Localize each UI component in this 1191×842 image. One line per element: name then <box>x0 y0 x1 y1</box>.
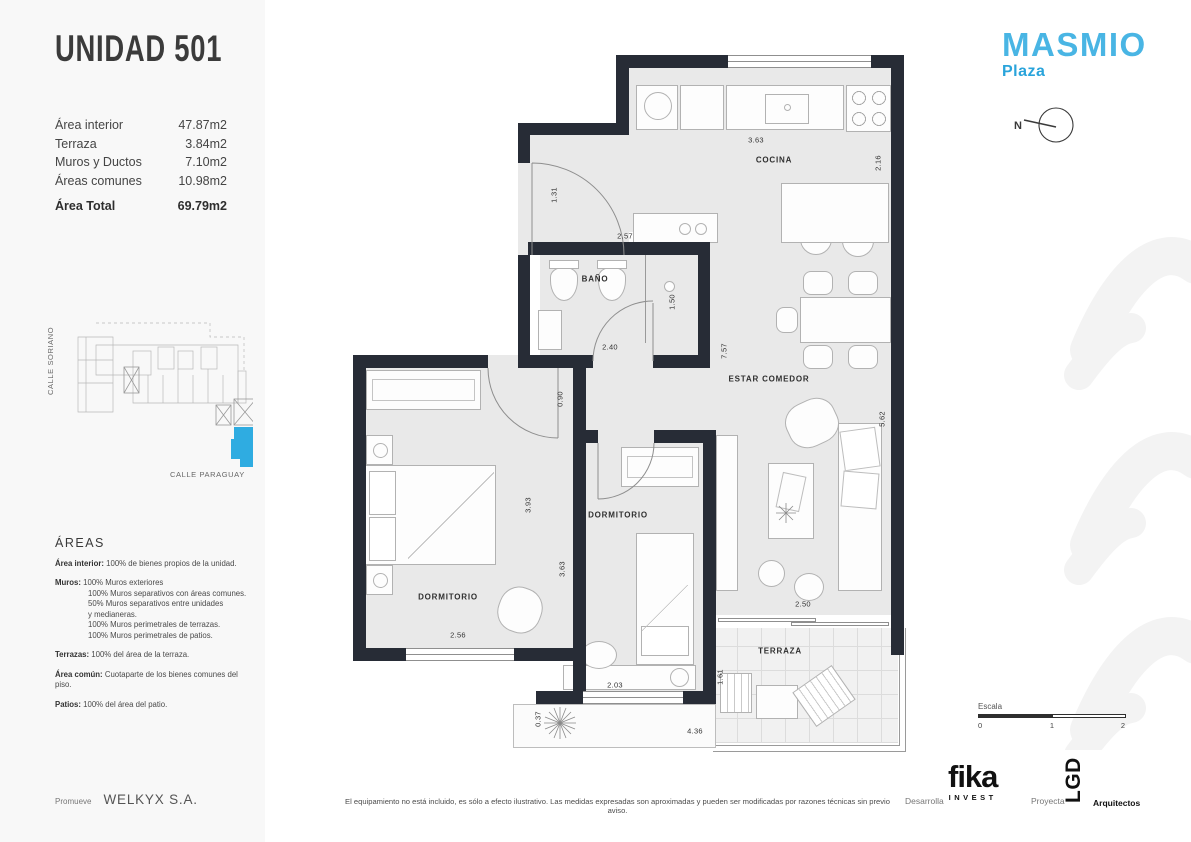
area-definition: Muros: 100% Muros exteriores100% Muros s… <box>55 578 255 641</box>
dimension-label: 0.37 <box>534 711 543 727</box>
plant-icon <box>544 503 796 739</box>
scale-tick: 0 <box>978 721 982 730</box>
architect-logo: LGD <box>1064 763 1088 805</box>
dimension-label: 1.50 <box>668 294 677 310</box>
unit-title: UNIDAD 501 <box>55 28 222 70</box>
scale-tick: 1 <box>1050 721 1054 730</box>
area-row: Área interior47.87m2 <box>55 116 227 135</box>
room-label: DORMITORIO <box>418 593 478 602</box>
street-label-paraguay: CALLE PARAGUAY <box>170 470 245 479</box>
brand-name: MASMIO <box>1002 28 1147 61</box>
room-label: TERRAZA <box>758 647 802 656</box>
area-row: Áreas comunes10.98m2 <box>55 172 227 191</box>
scale-tick: 2 <box>1121 721 1125 730</box>
areas-heading: ÁREAS <box>55 538 255 549</box>
dimension-label: 0.90 <box>556 391 565 407</box>
developer-brand-sub: INVEST <box>948 793 997 802</box>
dimension-label: 2.57 <box>617 232 633 241</box>
areas-table: Área interior47.87m2Terraza3.84m2Muros y… <box>55 116 227 216</box>
floor-plan: 3.632.161.312.571.502.407.570.905.623.93… <box>348 55 923 770</box>
street-label-soriano: CALLE SORIANO <box>46 327 55 395</box>
area-definition: Terrazas: 100% del área de la terraza. <box>55 650 255 661</box>
area-definition: Patios: 100% del área del patio. <box>55 700 255 711</box>
building-keyplan <box>38 315 253 480</box>
room-label: ESTAR COMEDOR <box>729 375 810 384</box>
scale-bar: Escala 0 1 2 <box>978 702 1128 731</box>
floorplan-sheet: { "sidebar": { "title": "UNIDAD 501", "a… <box>0 0 1191 842</box>
developer-role-label: Desarrolla <box>905 796 944 806</box>
svg-text:N: N <box>1014 120 1022 132</box>
area-total-row: Área Total69.79m2 <box>55 197 227 216</box>
area-row: Terraza3.84m2 <box>55 135 227 154</box>
dimension-label: 2.50 <box>795 600 811 609</box>
dimension-label: 2.40 <box>602 343 618 352</box>
stairs-hatch-icon <box>124 367 253 425</box>
dimension-label: 1.31 <box>550 187 559 203</box>
brand-subname: Plaza <box>1002 64 1147 80</box>
dimension-label: 2.16 <box>874 155 883 171</box>
areas-definitions: ÁREAS Área interior: 100% de bienes prop… <box>55 538 255 719</box>
dimension-label: 2.03 <box>607 681 623 690</box>
promoter-label: Promueve <box>55 797 91 806</box>
dimension-label: 4.36 <box>687 727 703 736</box>
developer-brand: fika <box>948 762 997 792</box>
dimension-label: 3.63 <box>558 561 567 577</box>
area-definition: Área común: Cuotaparte de los bienes com… <box>55 670 255 691</box>
dimension-label: 2.56 <box>450 631 466 640</box>
scale-label: Escala <box>978 702 1128 711</box>
promoter: PromueveWELKYX S.A. <box>55 792 198 807</box>
brand-logo: MASMIO Plaza <box>1002 28 1147 80</box>
disclaimer-text: El equipamiento no está incluido, es sól… <box>345 797 890 815</box>
room-label: DORMITORIO <box>588 511 648 520</box>
area-row: Muros y Ductos7.10m2 <box>55 153 227 172</box>
watermark-waves <box>1061 170 1191 750</box>
unit-501-highlight <box>231 427 253 467</box>
scale-bar-graphic <box>978 714 1128 719</box>
dimension-label: 3.93 <box>524 497 533 513</box>
sidebar: UNIDAD 501 Área interior47.87m2Terraza3.… <box>0 0 265 842</box>
room-label: COCINA <box>756 156 792 165</box>
developer-logo: fika INVEST <box>948 762 997 802</box>
room-label: BAÑO <box>582 275 609 284</box>
dimension-label: 5.62 <box>878 411 887 427</box>
dimension-label: 3.63 <box>748 136 764 145</box>
promoter-name: WELKYX S.A. <box>103 792 197 807</box>
area-definition: Área interior: 100% de bienes propios de… <box>55 559 255 570</box>
dimension-label: 7.57 <box>720 343 729 359</box>
north-arrow-icon: N <box>1010 103 1082 147</box>
door-swings <box>348 55 923 770</box>
architect-role-label: Proyecta <box>1031 796 1065 806</box>
architect-brand-sub: Arquitectos <box>1093 798 1140 808</box>
dimension-label: 1.61 <box>716 669 725 685</box>
